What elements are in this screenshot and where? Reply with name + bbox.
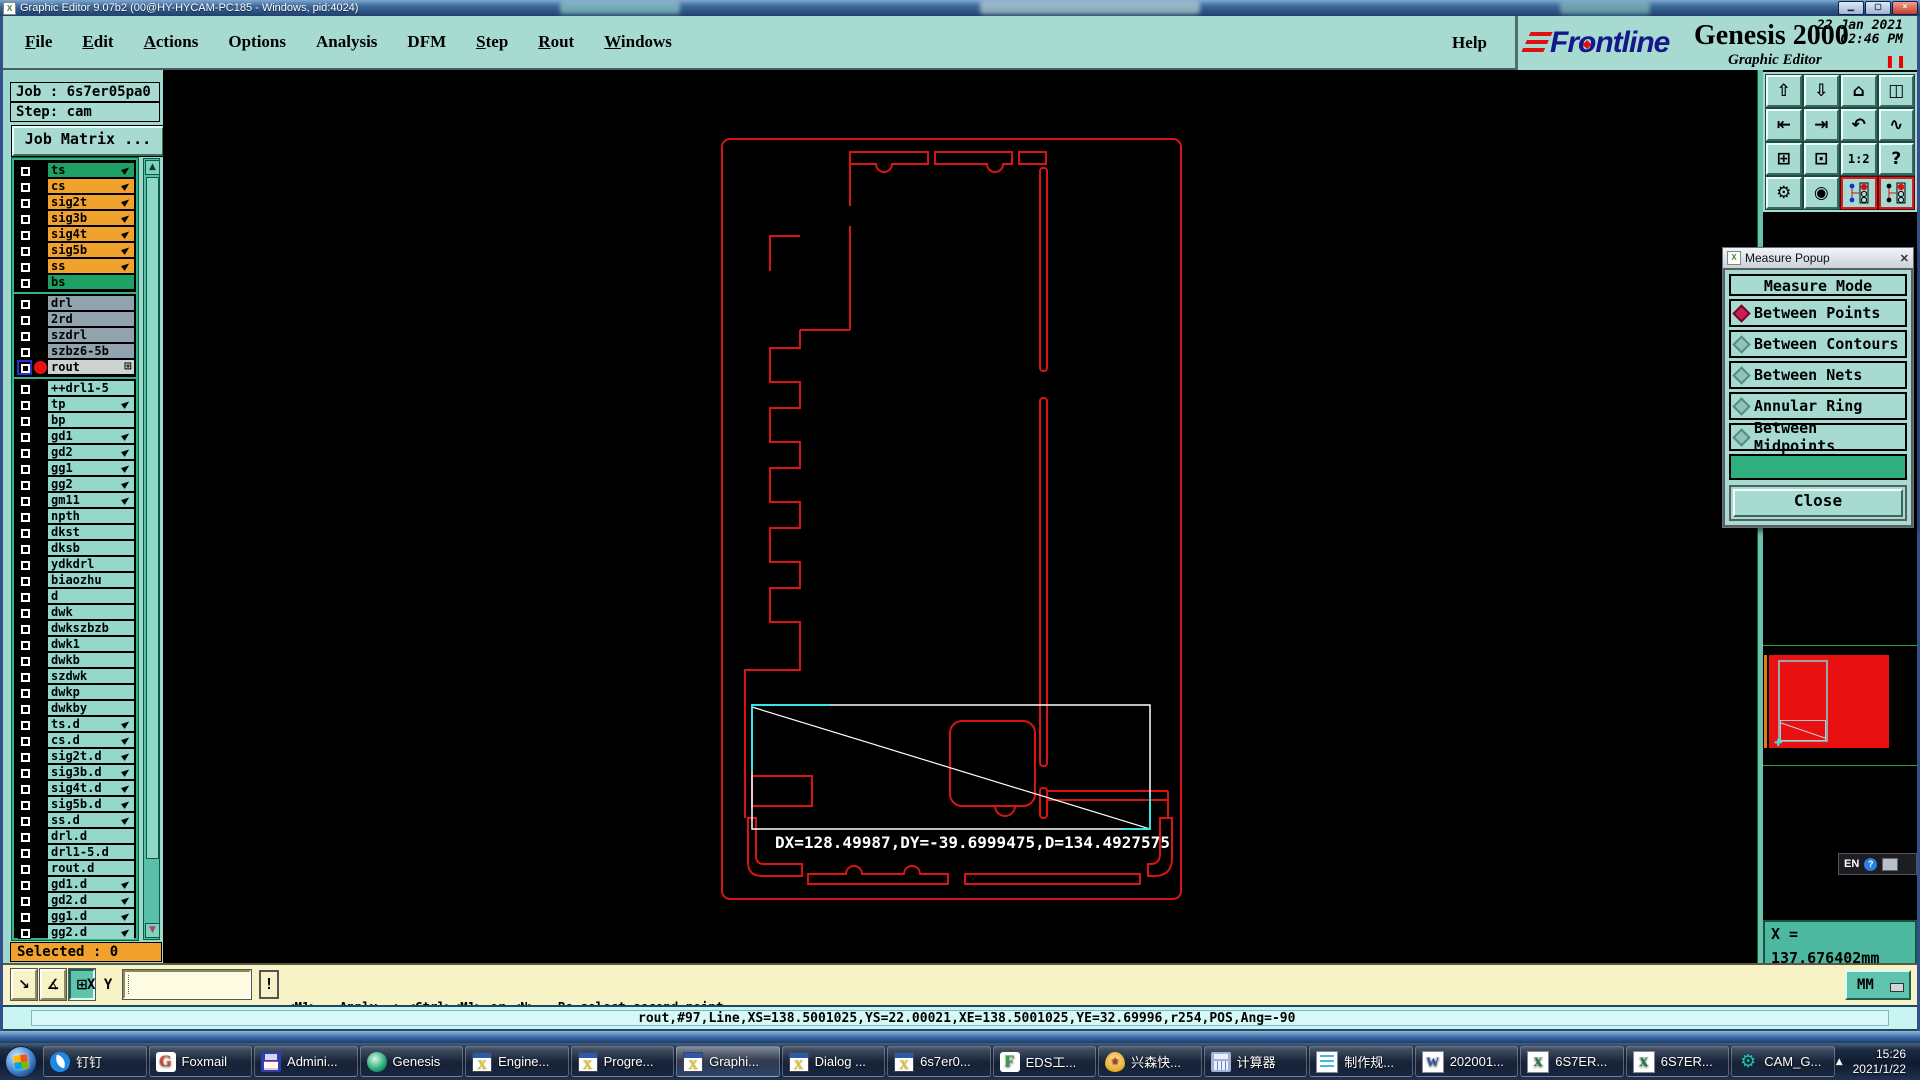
layer-checkbox[interactable] [18,345,31,358]
layer-checkbox[interactable] [18,766,31,779]
menu-dfm[interactable]: DFM [407,32,446,52]
layer-row-dkst[interactable]: dkst [14,524,136,540]
layer-row-gg1-d[interactable]: gg1.d [14,908,136,924]
layer-row-ss-d[interactable]: ss.d [14,812,136,828]
layer-checkbox[interactable] [18,558,31,571]
layer-label[interactable]: bs [48,275,134,289]
layer-checkbox[interactable] [18,590,31,603]
bottom-tab-bitten [808,866,948,884]
tool-undo-view[interactable]: ↶ [1841,109,1877,141]
layer-row-bp[interactable]: bp [14,412,136,428]
layer-checkbox[interactable] [18,574,31,587]
net-highlight-2-icon [1885,181,1907,205]
layer-label[interactable]: dwkby [48,701,134,715]
popup-close-icon[interactable]: ✕ [1900,252,1909,265]
tool-zoom-center[interactable]: ⊡ [1804,143,1840,175]
profile-curve-icon: ∿ [1889,115,1903,135]
layer-row-sig3b-d[interactable]: sig3b.d [14,764,136,780]
layer-label[interactable]: drl.d [48,829,134,843]
tool-paste-up[interactable]: ⇧ [1766,75,1802,107]
layer-row-sig5b-d[interactable]: sig5b.d [14,796,136,812]
measure-option-label: Between Midpoints [1754,419,1905,455]
pen-icon [121,399,131,409]
layer-checkbox[interactable] [18,494,31,507]
menu-step[interactable]: Step [476,32,508,52]
language-bar[interactable]: EN ? [1838,853,1917,875]
bottom-small-rect [752,776,812,806]
radio-icon[interactable] [1732,366,1750,384]
measure-option-between-contours[interactable]: Between Contours [1729,330,1907,358]
layer-label[interactable]: dwk [48,605,134,619]
task-genesis-3[interactable]: Genesis [360,1046,464,1077]
pen-icon [121,229,131,239]
word-icon: W [1422,1051,1444,1073]
task-progre-5[interactable]: Progre... [571,1046,675,1077]
os-title-bar[interactable]: X Graphic Editor 9.07b2 (00@HY-HYCAM-PC1… [0,0,1920,16]
tool-setup-tools[interactable]: ⚙ [1766,177,1802,209]
layer-row-2rd[interactable]: 2rd [14,311,136,327]
layer-row-dwk[interactable]: dwk [14,604,136,620]
keyboard-icon[interactable] [1882,858,1898,871]
layer-checkbox[interactable] [18,244,31,257]
layer-group-1: tscssig2tsig3bsig4tsig5bssbs [14,161,136,294]
minimize-button[interactable]: ▁ [1838,1,1864,15]
layer-row-drl-d[interactable]: drl.d [14,828,136,844]
pen-icon [121,213,131,223]
layer-checkbox[interactable] [18,878,31,891]
task-admini-2[interactable]: Admini... [254,1046,358,1077]
layer-label[interactable]: cs.d [48,733,134,747]
task-label: Admini... [287,1054,338,1069]
menu-analysis[interactable]: Analysis [316,32,377,52]
units-dropdown[interactable]: MM [1845,970,1911,1000]
layer-row-dwkb[interactable]: dwkb [14,652,136,668]
language-label[interactable]: EN [1844,858,1859,870]
layer-checkbox[interactable] [18,670,31,683]
excel-icon: X [1527,1051,1549,1073]
layer-label[interactable]: sig3b [48,211,134,225]
maximize-button[interactable]: ▢ [1865,1,1891,15]
measure-option-annular-ring[interactable]: Annular Ring [1729,392,1907,420]
task-label: Progre... [604,1054,654,1069]
layer-checkbox[interactable] [18,478,31,491]
job-matrix-button[interactable]: Job Matrix ... [12,126,164,156]
layer-row-dwk1[interactable]: dwk1 [14,636,136,652]
layer-label[interactable]: gd1.d [48,877,134,891]
menu-help[interactable]: Help [1452,16,1487,70]
task-制作规-12[interactable]: 制作规... [1309,1046,1413,1077]
radio-selected-icon[interactable] [1732,304,1750,322]
right-slot-2 [1040,398,1047,766]
layer-label[interactable]: gg2.d [48,925,134,939]
radio-icon[interactable] [1732,428,1750,446]
layer-label[interactable]: gg2 [48,477,134,491]
background-window-blob [1560,1,1650,14]
layer-row-biaozhu[interactable]: biaozhu [14,572,136,588]
tool-net-highlight-2[interactable] [1879,177,1915,209]
layer-label[interactable]: ss.d [48,813,134,827]
layer-row-gd2[interactable]: gd2 [14,444,136,460]
measure-option-between-points[interactable]: Between Points [1729,299,1907,327]
layer-checkbox[interactable] [18,430,31,443]
radio-icon[interactable] [1732,397,1750,415]
pen-icon [121,879,131,889]
scrollbar-thumb[interactable] [146,177,159,859]
layer-label[interactable]: szbz6-5b [48,344,134,358]
layer-checkbox[interactable] [18,654,31,667]
layer-checkbox[interactable] [18,414,31,427]
layer-label[interactable]: rout.d [48,861,134,875]
layer-label[interactable]: szdrl [48,328,134,342]
pen-icon [121,815,131,825]
layer-row-ydkdrl[interactable]: ydkdrl [14,556,136,572]
layer-checkbox[interactable] [18,910,31,923]
popup-close-button[interactable]: Close [1733,489,1903,517]
menu-actions[interactable]: Actions [144,32,199,52]
excel-icon: X [1633,1051,1655,1073]
layer-label[interactable]: 2rd [48,312,134,326]
layer-row-gd2-d[interactable]: gd2.d [14,892,136,908]
tool-inspect-point[interactable]: ◉ [1804,177,1840,209]
layer-checkbox[interactable] [18,228,31,241]
scroll-up-icon[interactable]: ▲ [145,160,160,175]
measure-popup-body: Measure Mode Between PointsBetween Conto… [1723,268,1913,527]
task-6s7er-14[interactable]: X6S7ER... [1520,1046,1624,1077]
speed-lines-icon [1521,32,1552,52]
layer-label[interactable]: drl1-5.d [48,845,134,859]
layer-checkbox[interactable] [18,734,31,747]
layer-checkbox[interactable] [18,750,31,763]
menu-windows[interactable]: Windows [604,32,672,52]
layer-row-cs-d[interactable]: cs.d [14,732,136,748]
layer-checkbox[interactable] [18,313,31,326]
layer-label[interactable]: ss [48,259,134,273]
layer-checkbox[interactable] [18,180,31,193]
pen-icon [121,767,131,777]
graphic-canvas[interactable]: DX=128.49987,DY=-39.6999475,D=134.492757… [163,70,1757,963]
layer-row-cs[interactable]: cs [14,178,136,194]
session-pause-indicator: ❚❚ [1885,54,1907,68]
screen: X Graphic Editor 9.07b2 (00@HY-HYCAM-PC1… [0,0,1920,1080]
layer-row-sig5b[interactable]: sig5b [14,242,136,258]
task-label: Graphi... [709,1054,759,1069]
frontline-logo: Fro◆ntline [1526,26,1669,60]
layer-row-drl[interactable]: drl [14,295,136,311]
layer-label[interactable]: rout⊞ [48,360,134,374]
layer-checkbox[interactable] [18,622,31,635]
layer-label[interactable]: sig2t.d [48,749,134,763]
tool-help-query[interactable]: ? [1879,143,1915,175]
layer-checkbox[interactable] [18,830,31,843]
clock-time: 15:26 [1853,1047,1906,1062]
layer-label[interactable]: gd2.d [48,893,134,907]
layer-checkbox[interactable] [18,164,31,177]
layer-row-npth[interactable]: npth [14,508,136,524]
scroll-down-icon[interactable]: ▼ [145,923,160,938]
layer-group-3: ++drl1-5tpbpgd1gd2gg1gg2gm11npthdkstdksb… [14,379,136,942]
tool-zoom-ratio[interactable]: 1:2 [1841,143,1877,175]
layer-row-tp[interactable]: tp [14,396,136,412]
layer-row-dwkby[interactable]: dwkby [14,700,136,716]
calc-icon [1211,1052,1231,1072]
layer-list: tscssig2tsig3bsig4tsig5bssbsdrl2rdszdrls… [12,158,138,940]
layer-label[interactable]: gg1.d [48,909,134,923]
layer-row-gd1[interactable]: gd1 [14,428,136,444]
top-tab-2 [935,152,1012,172]
popup-title-text: Measure Popup [1745,251,1830,265]
floppy-icon [261,1052,281,1072]
grid-icon: ⊞ [124,360,132,374]
layer-row-sig2t[interactable]: sig2t [14,194,136,210]
xy-coordinate-input[interactable] [123,970,251,999]
view-toolbar: ⇧⇩⌂◫⇤⇥↶∿⊞⊡1:2?⚙◉ [1763,72,1917,212]
task-6s7er0-8[interactable]: 6s7er0... [887,1046,991,1077]
shell-icon: ★ [1105,1052,1125,1072]
layer-label[interactable]: ts.d [48,717,134,731]
layer-checkbox[interactable] [18,510,31,523]
layer-row-rout-d[interactable]: rout.d [14,860,136,876]
layer-checkbox[interactable] [18,526,31,539]
left-profile-teeth [770,330,800,638]
task-兴森快-10[interactable]: ★兴森快... [1098,1046,1202,1077]
layer-checkbox[interactable] [18,718,31,731]
layer-row-rout[interactable]: rout⊞ [14,359,136,375]
job-name-box: Job : 6s7er05pa0 [10,82,160,102]
pen-icon [121,735,131,745]
measure-point-tool[interactable]: ↘ [11,969,37,1000]
layer-label[interactable]: dwkszbzb [48,621,134,635]
layer-checkbox[interactable] [18,926,31,939]
top-tab-3 [1019,152,1046,164]
pen-icon [121,245,131,255]
layer-label[interactable]: d [48,589,134,603]
task-label: 6S7ER... [1661,1054,1713,1069]
layer-row-sig2t-d[interactable]: sig2t.d [14,748,136,764]
task-计算器-11[interactable]: 计算器 [1204,1046,1308,1077]
layer-checkbox[interactable] [18,212,31,225]
task-label: 202001... [1450,1054,1504,1069]
layer-checkbox[interactable] [18,782,31,795]
layer-label[interactable]: npth [48,509,134,523]
tool-pan-right[interactable]: ⇥ [1804,109,1840,141]
layer-checkbox[interactable] [18,606,31,619]
layer-row-dwkszbzb[interactable]: dwkszbzb [14,620,136,636]
layer-label[interactable]: sig5b [48,243,134,257]
layer-label[interactable]: gg1 [48,461,134,475]
prompt-alert-button[interactable]: ! [259,970,279,999]
layer-checkbox[interactable] [18,702,31,715]
layer-row-gg2[interactable]: gg2 [14,476,136,492]
task-6s7er-15[interactable]: X6S7ER... [1626,1046,1730,1077]
layer-checkbox[interactable] [18,329,31,342]
layer-checkbox[interactable] [18,446,31,459]
tray-expand-icon[interactable]: ▲ [1836,1057,1843,1067]
layer-row-gm11[interactable]: gm11 [14,492,136,508]
tool-zoom-fit[interactable]: ⊞ [1766,143,1802,175]
layer-checkbox[interactable] [18,814,31,827]
overview-border-top [1763,645,1917,646]
measure-diagonal [752,707,1150,829]
layer-list-scrollbar[interactable]: ▲ ▼ [143,158,160,940]
measure-option-between-nets[interactable]: Between Nets [1729,361,1907,389]
cutout-tab-bump [995,806,1015,816]
measure-result-bar [1729,454,1907,480]
layer-label[interactable]: biaozhu [48,573,134,587]
layer-label[interactable]: gd1 [48,429,134,443]
layer-checkbox[interactable] [18,297,31,310]
menu-options[interactable]: Options [228,32,286,52]
measure-mode-options: Between PointsBetween ContoursBetween Ne… [1729,299,1907,451]
task-engine-4[interactable]: Engine... [465,1046,569,1077]
status-text: rout,#97,Line,XS=138.5001025,YS=22.00021… [638,1011,1295,1026]
measure-option-label: Between Contours [1754,335,1899,353]
pen-icon [121,495,131,505]
layer-checkbox[interactable] [18,542,31,555]
layer-row-sig4t-d[interactable]: sig4t.d [14,780,136,796]
pen-icon [121,911,131,921]
app-icon: X [3,2,16,15]
tool-paste-down[interactable]: ⇩ [1804,75,1840,107]
layer-label[interactable]: gm11 [48,493,134,507]
layer-row-gg2-d[interactable]: gg2.d [14,924,136,940]
dropdown-shade-icon [1890,983,1904,992]
task-graphi-6[interactable]: Graphi... [676,1046,780,1077]
tool-pan-left[interactable]: ⇤ [1766,109,1802,141]
layer-label[interactable]: dkst [48,525,134,539]
layer-label[interactable]: dwk1 [48,637,134,651]
menu-rout[interactable]: Rout [538,32,574,52]
layer-checkbox[interactable] [18,862,31,875]
measure-option-between-midpoints[interactable]: Between Midpoints [1729,423,1907,451]
layer-row-szdrl[interactable]: szdrl [14,327,136,343]
layer-checkbox[interactable] [18,398,31,411]
menu-file[interactable]: File [25,32,52,52]
taskbar-clock[interactable]: 15:26 2021/1/22 [1853,1047,1906,1077]
radio-icon[interactable] [1732,335,1750,353]
status-bar: rout,#97,Line,XS=138.5001025,YS=22.00021… [3,1005,1917,1031]
layer-row-sig4t[interactable]: sig4t [14,226,136,242]
layer-label[interactable]: sig4t [48,227,134,241]
layer-label[interactable]: tp [48,397,134,411]
layer-row-szbz6-5b[interactable]: szbz6-5b [14,343,136,359]
command-bar: ↘ ∡ ⊞ X Y : ! <M1> - Apply ; <Ctrl><M1> … [3,963,1757,1005]
layer-checkbox[interactable] [18,382,31,395]
layer-label[interactable]: drl [48,296,134,310]
menu-edit[interactable]: Edit [82,32,113,52]
layer-checkbox[interactable] [18,686,31,699]
task-cam-g-16[interactable]: ⚙CAM_G... [1731,1046,1835,1077]
layer-label[interactable]: szdwk [48,669,134,683]
menu-items: FileEditActionsOptionsAnalysisDFMStepRou… [25,32,672,52]
product-subtitle: Graphic Editor [1728,52,1822,69]
layer-checkbox[interactable] [18,462,31,475]
layer-label[interactable]: cs [48,179,134,193]
measure-overlay: DX=128.49987,DY=-39.6999475,D=134.492757… [752,705,1170,852]
tool-net-highlight-1[interactable] [1841,177,1877,209]
layer-label[interactable]: sig4t.d [48,781,134,795]
tool-home-view[interactable]: ⌂ [1841,75,1877,107]
pen-icon [121,751,131,761]
layer-row-drl1-5[interactable]: ++drl1-5 [14,380,136,396]
zoom-fit-icon: ⊞ [1777,149,1791,169]
layer-row-szdwk[interactable]: szdwk [14,668,136,684]
start-button[interactable] [0,1045,42,1079]
task-label: Foxmail [182,1054,228,1069]
layer-label[interactable]: ydkdrl [48,557,134,571]
layer-row-d[interactable]: d [14,588,136,604]
task-foxmail-1[interactable]: GFoxmail [149,1046,253,1077]
layer-label[interactable]: sig5b.d [48,797,134,811]
task-dialog-7[interactable]: Dialog ... [782,1046,886,1077]
layer-label[interactable]: dwkp [48,685,134,699]
layer-checkbox[interactable] [17,360,32,375]
pen-icon [121,719,131,729]
layer-checkbox[interactable] [18,894,31,907]
layer-row-gd1-d[interactable]: gd1.d [14,876,136,892]
layer-label[interactable]: dwkb [48,653,134,667]
layer-checkbox[interactable] [18,196,31,209]
layer-label[interactable]: ++drl1-5 [48,381,134,395]
layer-row-ts-d[interactable]: ts.d [14,716,136,732]
task-钉钉-0[interactable]: 钉钉 [43,1046,147,1077]
background-window-blob [560,1,680,14]
layer-checkbox[interactable] [18,260,31,273]
brand-header: Fro◆ntline Genesis 2000 Graphic Editor 2… [1515,16,1917,70]
layer-row-ts[interactable]: ts [14,162,136,178]
pen-icon [121,261,131,271]
layer-label[interactable]: sig2t [48,195,134,209]
pan-left-icon: ⇤ [1777,115,1791,135]
datetime-display: 22 Jan 2021 02:46 PM [1817,19,1903,47]
tool-profile-curve[interactable]: ∿ [1879,109,1915,141]
layer-label[interactable]: ts [48,163,134,177]
task-eds工-9[interactable]: FEDS工... [993,1046,1097,1077]
task-label: 制作规... [1344,1052,1394,1071]
layer-label[interactable]: bp [48,413,134,427]
tool-tile-windows-xy[interactable]: ◫ [1879,75,1915,107]
popup-app-icon: X [1727,251,1741,265]
measure-readout: DX=128.49987,DY=-39.6999475,D=134.492757… [775,833,1170,852]
layer-row-dwkp[interactable]: dwkp [14,684,136,700]
layer-row-drl1-5-d[interactable]: drl1-5.d [14,844,136,860]
task-202001-13[interactable]: W202001... [1415,1046,1519,1077]
clock-date: 2021/1/22 [1853,1062,1906,1077]
task-label: 6S7ER... [1555,1054,1607,1069]
layer-row-ss[interactable]: ss [14,258,136,274]
measure-popup-titlebar[interactable]: X Measure Popup ✕ [1723,248,1913,268]
active-layer-dot [34,361,47,374]
layer-label[interactable]: dksb [48,541,134,555]
paste-down-icon: ⇩ [1814,81,1828,101]
layer-checkbox[interactable] [18,276,31,289]
close-button[interactable]: × [1892,1,1918,15]
layer-checkbox[interactable] [18,798,31,811]
date-text: 22 Jan 2021 [1817,19,1903,33]
measure-angle-tool[interactable]: ∡ [40,969,66,1000]
layer-label[interactable]: gd2 [48,445,134,459]
layer-row-dksb[interactable]: dksb [14,540,136,556]
window-title: Graphic Editor 9.07b2 (00@HY-HYCAM-PC185… [20,2,358,14]
layer-checkbox[interactable] [18,638,31,651]
layer-row-sig3b[interactable]: sig3b [14,210,136,226]
ime-help-icon[interactable]: ? [1864,858,1877,871]
layer-row-gg1[interactable]: gg1 [14,460,136,476]
layer-checkbox[interactable] [18,846,31,859]
left-profile-steps [770,164,850,330]
layer-row-bs[interactable]: bs [14,274,136,290]
layer-label[interactable]: sig3b.d [48,765,134,779]
zoom-center-icon: ⊡ [1814,149,1828,169]
